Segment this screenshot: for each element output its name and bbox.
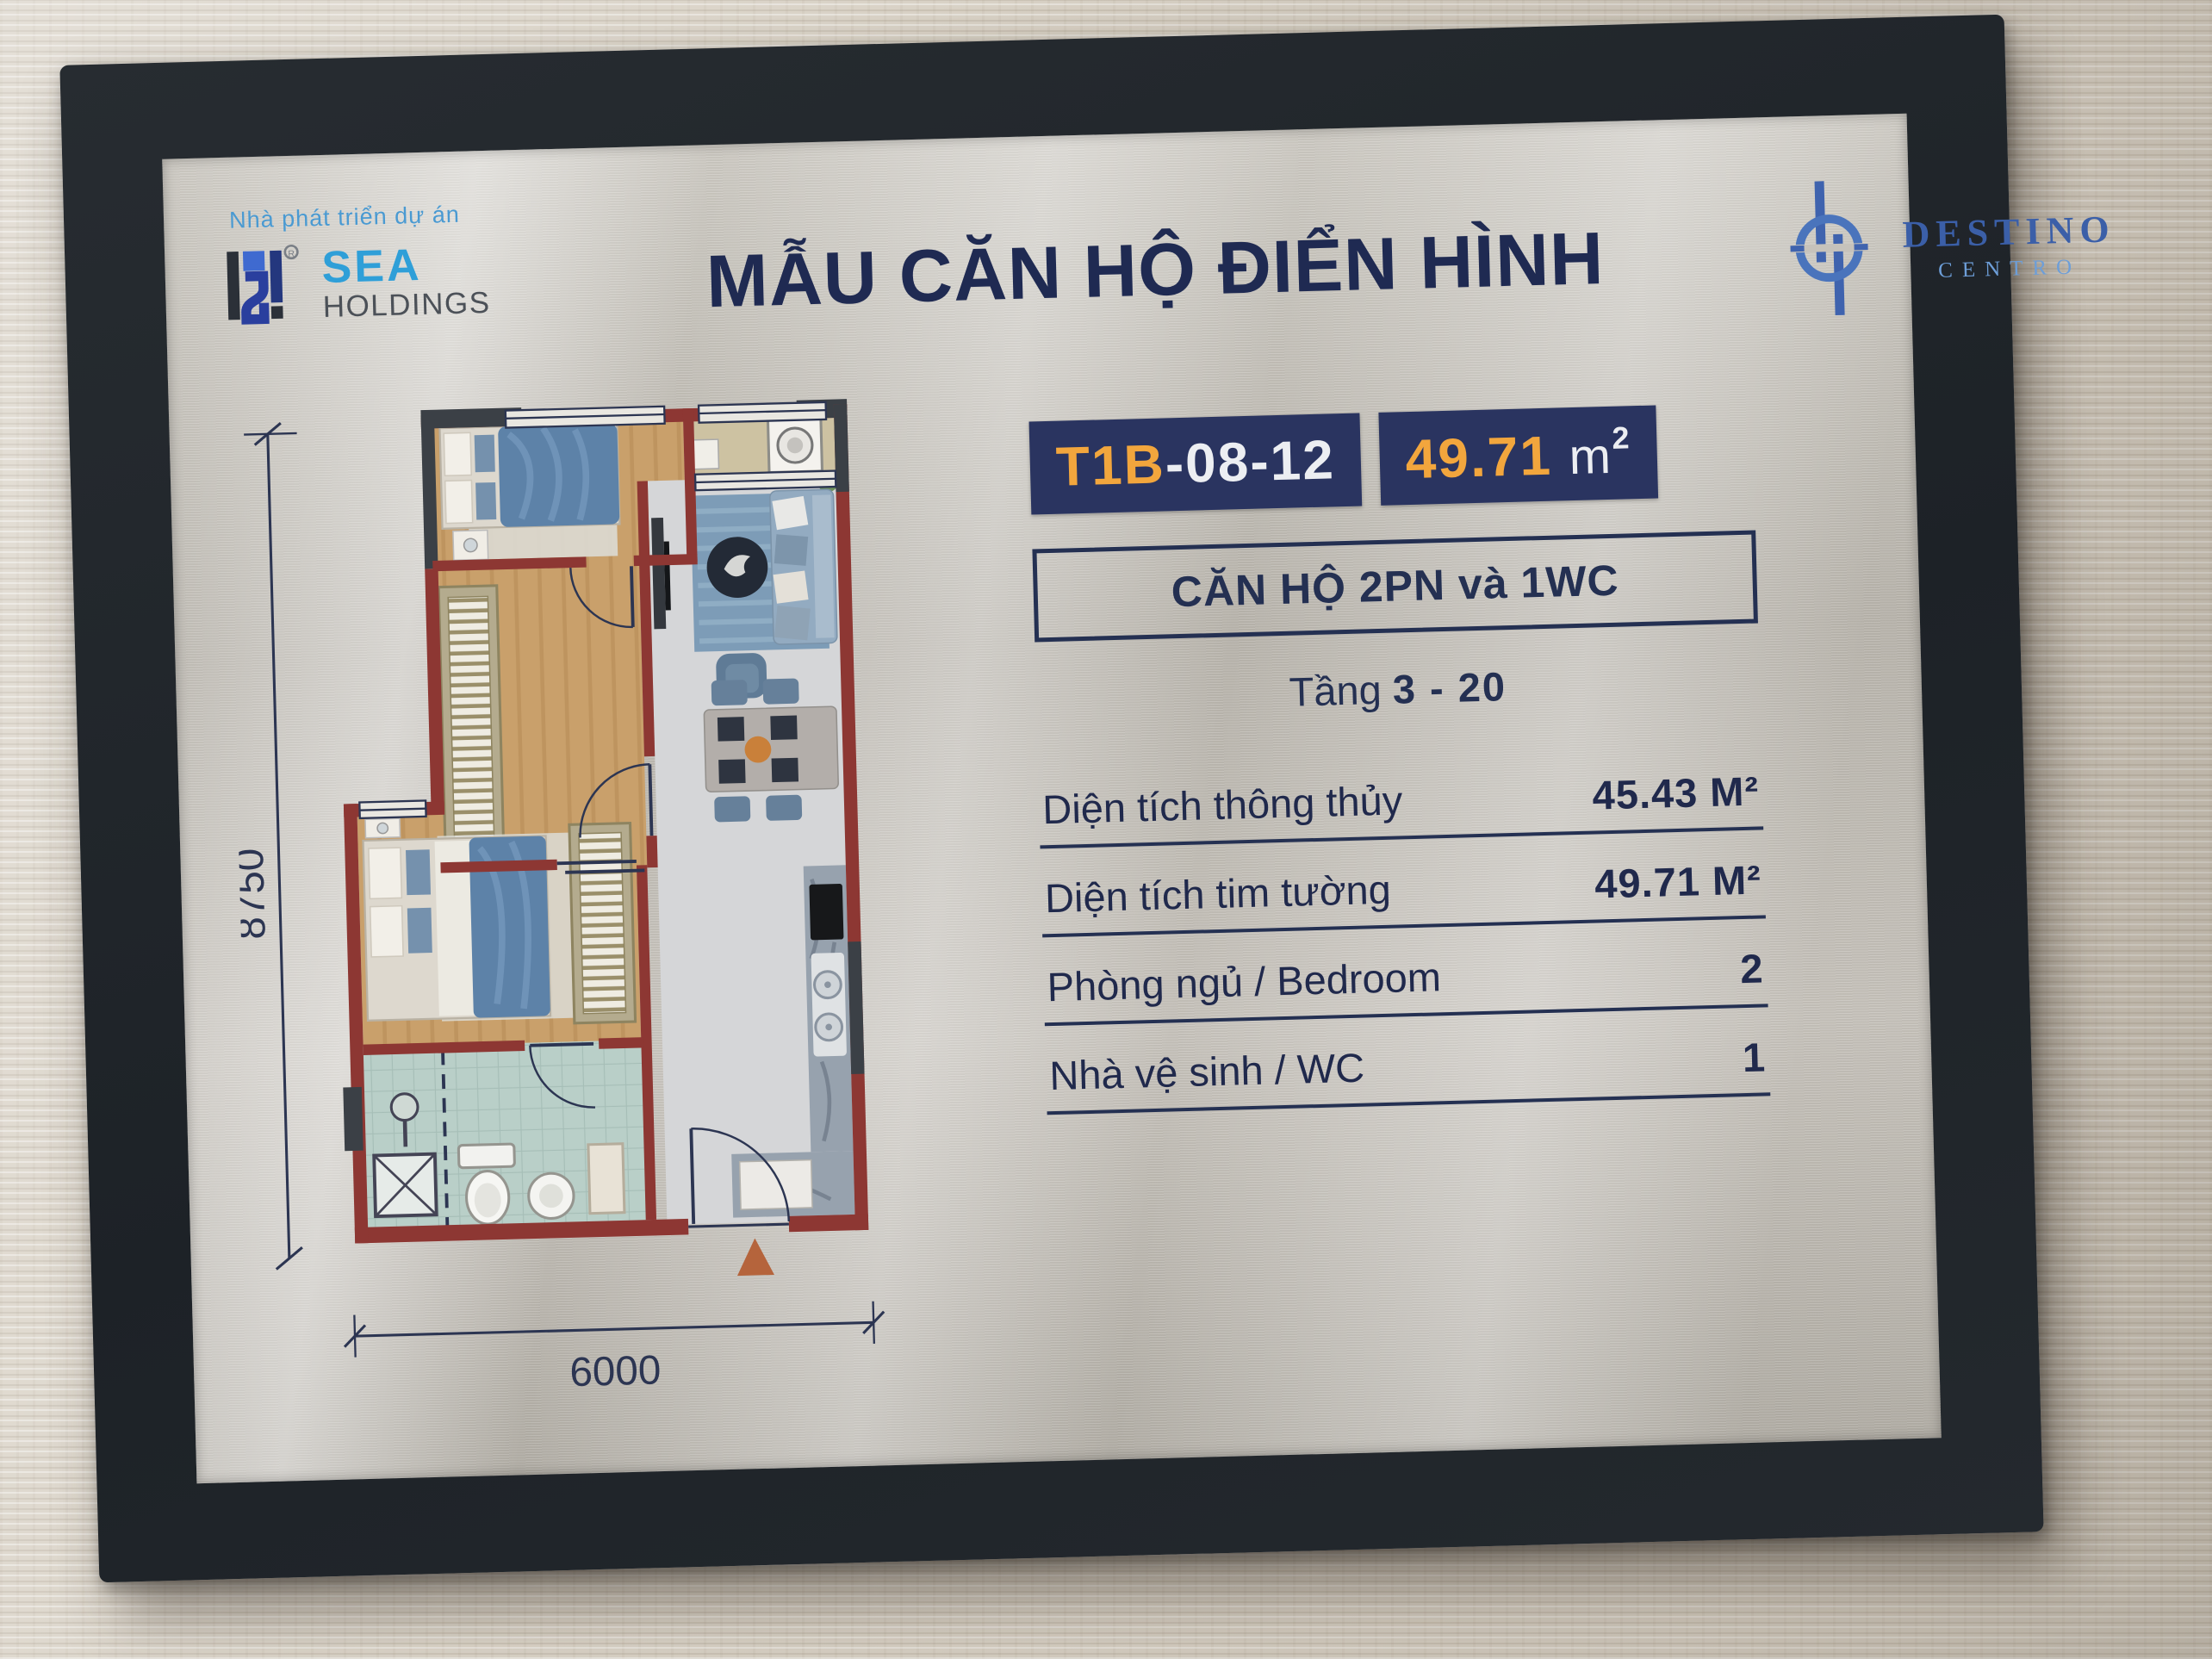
plaque-title: MẪU CĂN HỘ ĐIỂN HÌNH (705, 216, 1606, 325)
entrance-marker-icon (736, 1238, 774, 1276)
bedroom1-furniture (439, 424, 620, 561)
spec-list: Diện tích thông thủy 45.43 M² Diện tích … (1038, 741, 1770, 1115)
floor-plan: 8750 6000 (227, 356, 995, 1447)
spec-row-wc: Nhà vệ sinh / WC 1 (1045, 1007, 1770, 1115)
unit-type-box: CĂN HỘ 2PN và 1WC (1032, 531, 1758, 643)
floor-range-value: 3 - 20 (1392, 663, 1507, 711)
svg-text:R: R (288, 250, 295, 259)
project-subname: CENTRO (1938, 256, 2082, 283)
project-logo-block: DESTINO CENTRO (1777, 171, 2117, 322)
unit-area-unit: m (1569, 428, 1613, 485)
height-dimension-label: 8750 (227, 848, 275, 940)
unit-code-suffix: -08-12 (1165, 428, 1336, 494)
plaque-header: Nhà phát triển dự án R (221, 150, 1854, 363)
corridor-wardrobe (438, 586, 504, 852)
plaque-content: 8750 6000 (227, 332, 1882, 1447)
unit-area-value: 49.71 (1405, 425, 1553, 490)
unit-code-badge: T1B-08-12 (1029, 413, 1363, 514)
floor-range-line: Tầng 3 - 20 (1035, 656, 1760, 722)
unit-code-prefix: T1B (1055, 432, 1166, 497)
developer-name-secondary: HOLDINGS (322, 286, 491, 325)
unit-area-badge: 49.71 m2 (1378, 405, 1658, 505)
developer-block: Nhà phát triển dự án R (222, 195, 708, 333)
unit-badges: T1B-08-12 49.71 m2 (1029, 403, 1755, 515)
developer-name-primary: SEA (321, 241, 490, 290)
steel-panel: Nhà phát triển dự án R (162, 114, 1942, 1484)
unit-info: T1B-08-12 49.71 m2 CĂN HỘ 2PN và 1WC Tần… (1027, 336, 1778, 1427)
metal-plaque-frame: Nhà phát triển dự án R (59, 15, 2043, 1583)
bedroom2-furniture (363, 812, 636, 1028)
project-name: DESTINO (1902, 207, 2116, 256)
sea-holdings-logo-icon: R (223, 237, 315, 333)
destino-centro-logo-icon (1777, 178, 1882, 323)
width-dimension-label: 6000 (569, 1347, 662, 1395)
